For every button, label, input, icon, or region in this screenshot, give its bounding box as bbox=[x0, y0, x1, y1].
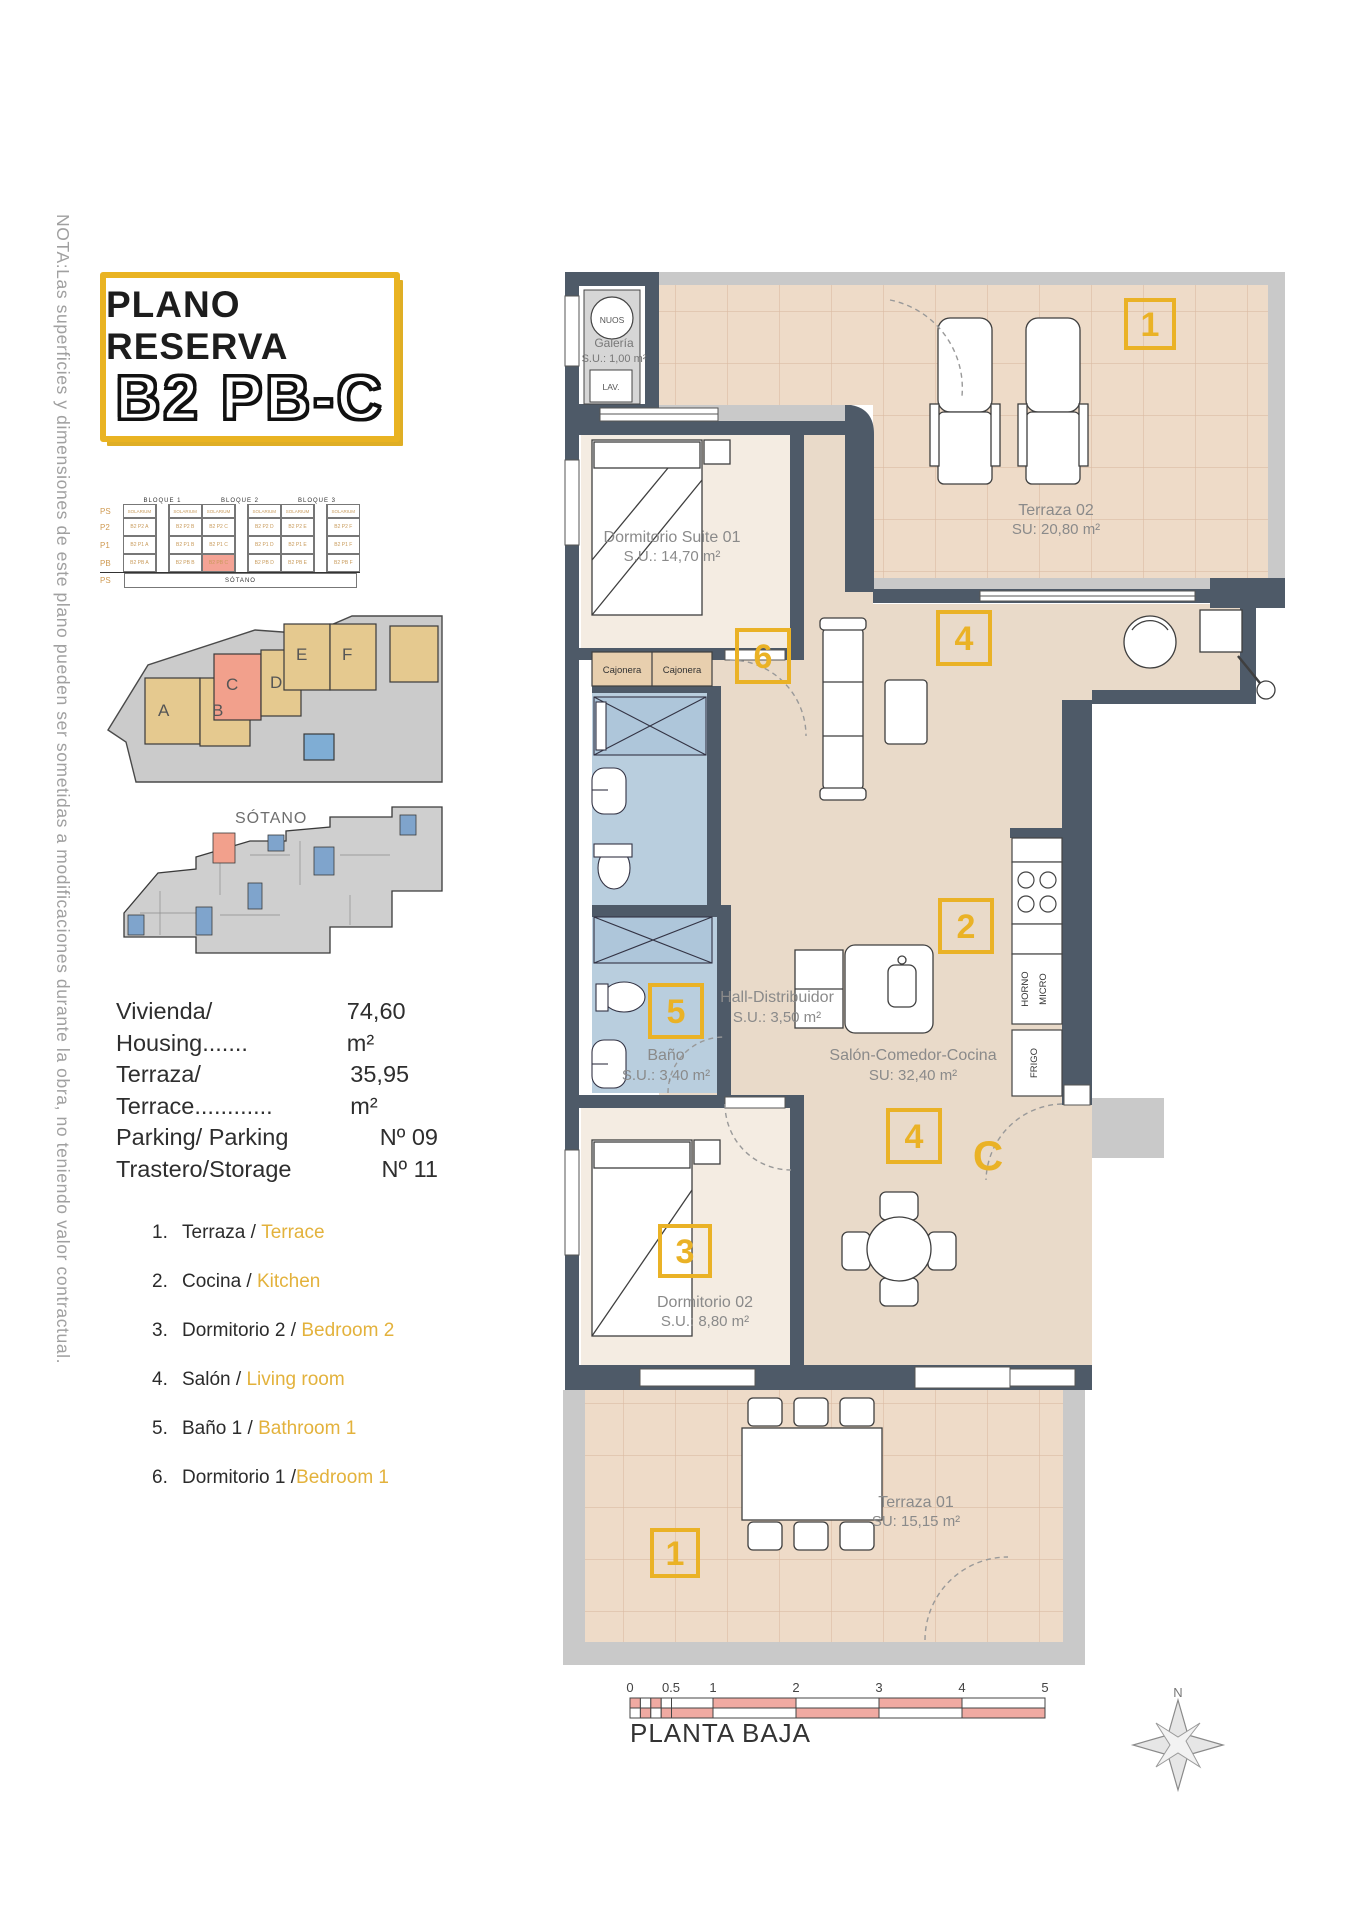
site-letter-d: D bbox=[270, 673, 282, 692]
legend-item-bano: 5.Baño 1 / Bathroom 1 bbox=[152, 1418, 452, 1440]
bano-name: Baño bbox=[647, 1047, 684, 1064]
badge-terraza02: 1 bbox=[1141, 306, 1160, 344]
sotano-cell-blue-4 bbox=[196, 907, 212, 935]
schedule-row-pb: PB B2 PB A B2 PB B B2 PB C B2 PB D B2 PB… bbox=[100, 554, 360, 572]
svg-text:0.5: 0.5 bbox=[662, 1680, 680, 1695]
pool bbox=[304, 734, 334, 760]
legend-item-terraza: 1.Terraza / Terrace bbox=[152, 1222, 452, 1244]
galeria-lav-label: LAV. bbox=[602, 382, 619, 392]
disclaimer-note: NOTA:Las superficies y dimensiones de es… bbox=[52, 214, 73, 1614]
info-parking: Parking/ ParkingNº 09 bbox=[116, 1122, 438, 1154]
info-storage: Trastero/StorageNº 11 bbox=[116, 1154, 438, 1186]
badge-dorm02: 3 bbox=[676, 1233, 695, 1271]
schedule-row-p2: P2 B2 P2 A B2 P2 B B2 P2 C B2 P2 D B2 P2… bbox=[100, 518, 360, 536]
island-sink-icon bbox=[888, 965, 916, 1007]
cajonera-label-1: Cajonera bbox=[603, 665, 642, 676]
plan-title-line2: B2 PB-C bbox=[115, 368, 384, 430]
cajonera-units: Cajonera Cajonera bbox=[592, 652, 712, 686]
badge-terraza01: 1 bbox=[666, 1535, 685, 1573]
frigo-label: FRIGO bbox=[1029, 1048, 1040, 1078]
hall-area: S.U.: 3,50 m² bbox=[733, 1009, 821, 1026]
galeria: NUOS LAV. Galería S.U.: 1,00 m² bbox=[582, 290, 647, 404]
site-letter-c: C bbox=[226, 675, 238, 694]
surfaces-info: Vivienda/ Housing.......74,60 m² Terraza… bbox=[116, 996, 438, 1185]
schedule-header-row: BLOQUE 1 BLOQUE 2 BLOQUE 3 bbox=[100, 492, 360, 504]
sotano-plan: SÓTANO bbox=[100, 795, 445, 985]
main-floor-plan: NUOS LAV. Galería S.U.: 1,00 m² Cajonera… bbox=[455, 220, 1285, 1800]
galeria-area: S.U.: 1,00 m² bbox=[582, 353, 647, 365]
sink-icon bbox=[592, 768, 626, 814]
sotano-cell-blue-5 bbox=[128, 915, 144, 935]
svg-text:0: 0 bbox=[626, 1680, 633, 1695]
schedule-row-ps: PS SOLARIUM SOLARIUM SOLARIUM SOLARIUM S… bbox=[100, 504, 360, 518]
terraza01-name: Terraza 01 bbox=[878, 1494, 954, 1511]
sotano-cell-blue-1 bbox=[268, 835, 284, 851]
highlighted-unit-cell: B2 PB C bbox=[202, 554, 235, 572]
legend-item-dormitorio2: 3.Dormitorio 2 / Bedroom 2 bbox=[152, 1320, 452, 1342]
suite-name: Dormitorio Suite 01 bbox=[604, 529, 741, 546]
bloque1-header: BLOQUE 1 bbox=[124, 492, 201, 504]
title-box: PLANO RESERVA B2 PB-C bbox=[100, 272, 400, 442]
cooktop-icon bbox=[1012, 862, 1062, 924]
salon-name: Salón-Comedor-Cocina bbox=[829, 1047, 996, 1064]
schedule-row-p1: P1 B2 P1 A B2 P1 B B2 P1 C B2 P1 D B2 P1… bbox=[100, 536, 360, 554]
sotano-storage-highlight bbox=[213, 833, 235, 863]
suite-area: S.U.: 14,70 m² bbox=[624, 548, 721, 565]
compass-rose-icon: N bbox=[1133, 1685, 1223, 1790]
building-a bbox=[145, 678, 200, 744]
dorm02-area: S.U.: 8,80 m² bbox=[661, 1313, 749, 1330]
terrace-dining-set bbox=[742, 1398, 882, 1550]
badge-suite: 6 bbox=[754, 638, 773, 676]
svg-text:1: 1 bbox=[709, 1680, 716, 1695]
bloque2-header: BLOQUE 2 bbox=[201, 492, 279, 504]
svg-text:5: 5 bbox=[1041, 1680, 1048, 1695]
sotano-label: SÓTANO bbox=[235, 808, 307, 827]
terraza02-name: Terraza 02 bbox=[1018, 502, 1094, 519]
coffee-table bbox=[885, 680, 927, 744]
legend-item-dormitorio1: 6.Dormitorio 1 /Bedroom 1 bbox=[152, 1467, 452, 1489]
svg-text:4: 4 bbox=[958, 1680, 965, 1695]
galeria-appliance-label: NUOS bbox=[600, 315, 625, 325]
site-letter-f: F bbox=[342, 645, 352, 664]
scale-bar: 0 0.5 1 2 3 4 5 bbox=[626, 1680, 1048, 1718]
site-letter-b: B bbox=[212, 701, 223, 720]
galeria-name: Galería bbox=[594, 336, 634, 350]
svg-text:3: 3 bbox=[875, 1680, 882, 1695]
salon-area: SU: 32,40 m² bbox=[869, 1067, 957, 1084]
sotano-cell-blue-2 bbox=[314, 847, 334, 875]
badge-salon: 4 bbox=[955, 620, 974, 658]
cajonera-label-2: Cajonera bbox=[663, 665, 702, 676]
legend-item-salon: 4.Salón / Living room bbox=[152, 1369, 452, 1391]
site-letter-a: A bbox=[158, 701, 170, 720]
info-housing: Vivienda/ Housing.......74,60 m² bbox=[116, 996, 438, 1059]
dorm02-name: Dormitorio 02 bbox=[657, 1294, 753, 1311]
sotano-cell-blue-3 bbox=[248, 883, 262, 909]
toilet-icon bbox=[603, 982, 645, 1012]
sotano-ground bbox=[124, 807, 442, 953]
bano-area: S.U.: 3,40 m² bbox=[622, 1067, 710, 1084]
building-extra bbox=[390, 626, 438, 682]
terraza01-area: SU: 15,15 m² bbox=[872, 1513, 960, 1530]
site-letter-e: E bbox=[296, 645, 307, 664]
terraza02-area: SU: 20,80 m² bbox=[1012, 521, 1100, 538]
info-terrace: Terraza/ Terrace............35,95 m² bbox=[116, 1059, 438, 1122]
sotano-cell-blue-6 bbox=[400, 815, 416, 835]
side-table bbox=[1200, 610, 1242, 652]
hall-name: Hall-Distribuidor bbox=[720, 989, 834, 1006]
floor-lamp-icon bbox=[1257, 681, 1275, 699]
horno-label: HORNO bbox=[1020, 971, 1031, 1006]
entrance-porch bbox=[1092, 1098, 1164, 1158]
block-schedule: BLOQUE 1 BLOQUE 2 BLOQUE 3 PS SOLARIUM S… bbox=[100, 492, 360, 588]
compass-north-label: N bbox=[1173, 1685, 1182, 1700]
legend-item-cocina: 2.Cocina / Kitchen bbox=[152, 1271, 452, 1293]
room-legend: 1.Terraza / Terrace 2.Cocina / Kitchen 3… bbox=[152, 1222, 452, 1516]
floor-plan-sheet: NOTA:Las superficies y dimensiones de es… bbox=[0, 0, 1356, 1920]
micro-label: MICRO bbox=[1038, 973, 1049, 1005]
site-plan: A B C D E F bbox=[100, 610, 445, 795]
svg-text:2: 2 bbox=[792, 1680, 799, 1695]
badge-bano: 5 bbox=[667, 993, 686, 1031]
building-f bbox=[330, 624, 376, 690]
bloque3-header: BLOQUE 3 bbox=[279, 492, 355, 504]
plan-title-line1: PLANO RESERVA bbox=[106, 284, 394, 368]
badge-salon2: 4 bbox=[905, 1118, 924, 1156]
plan-floor-title: PLANTA BAJA bbox=[630, 1718, 811, 1748]
schedule-row-sotano: PS SÓTANO bbox=[100, 572, 360, 588]
sofa bbox=[820, 618, 866, 800]
badge-cocina: 2 bbox=[957, 908, 976, 946]
entrance-door-letter: C bbox=[973, 1132, 1003, 1179]
